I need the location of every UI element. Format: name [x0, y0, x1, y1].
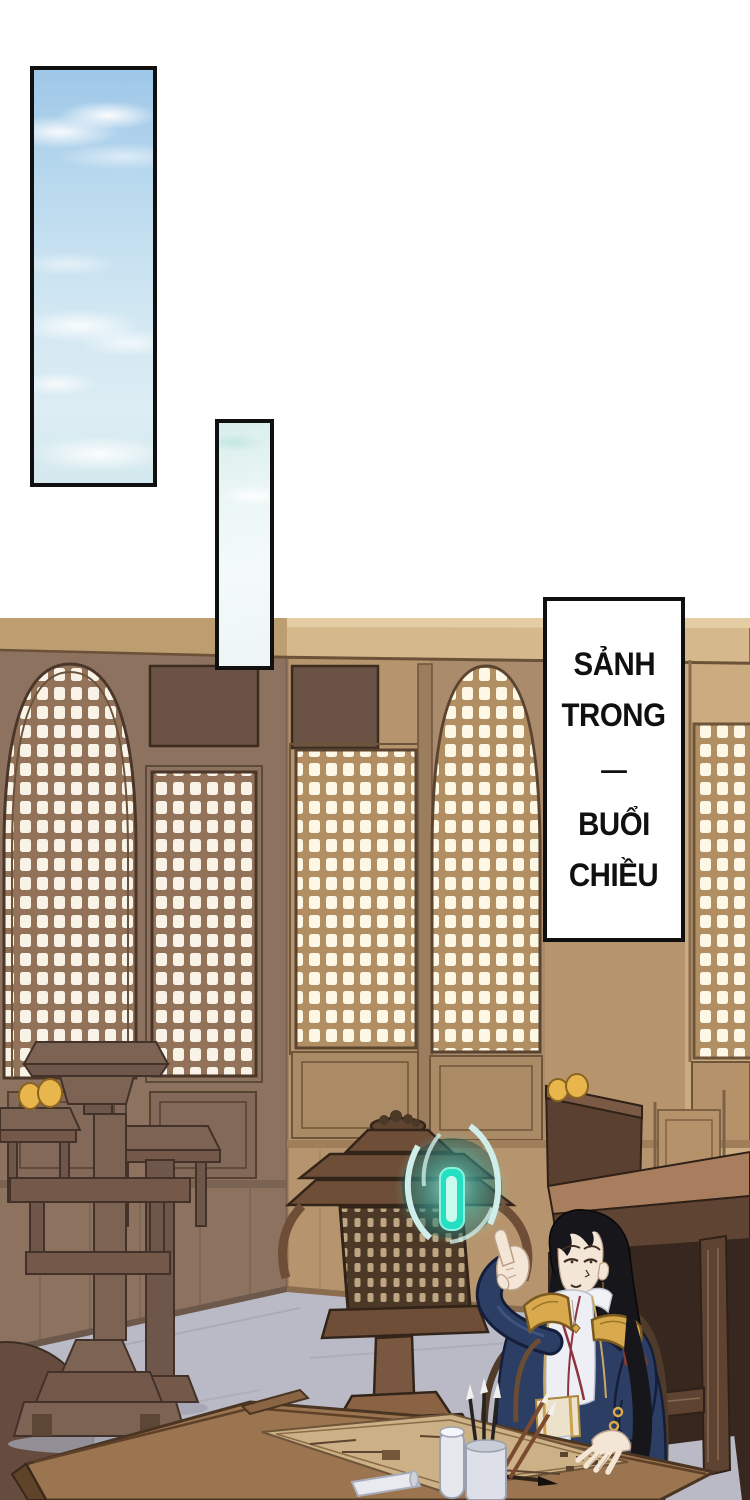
- caption-box: SẢNH TRONG — BUỔI CHIỀU: [543, 597, 685, 942]
- comic-page: SẢNH TRONG — BUỔI CHIỀU: [0, 0, 750, 1500]
- caption-line-1: SẢNH: [573, 639, 655, 690]
- sky-panel-tall: [30, 66, 157, 487]
- caption-dash: —: [601, 741, 626, 799]
- ear: [598, 1263, 609, 1280]
- caption-line-2: TRONG: [562, 690, 666, 741]
- caption-line-3: BUỔI: [578, 799, 650, 850]
- caption-line-4: CHIỀU: [569, 850, 658, 901]
- sky-panel-small: [215, 419, 274, 670]
